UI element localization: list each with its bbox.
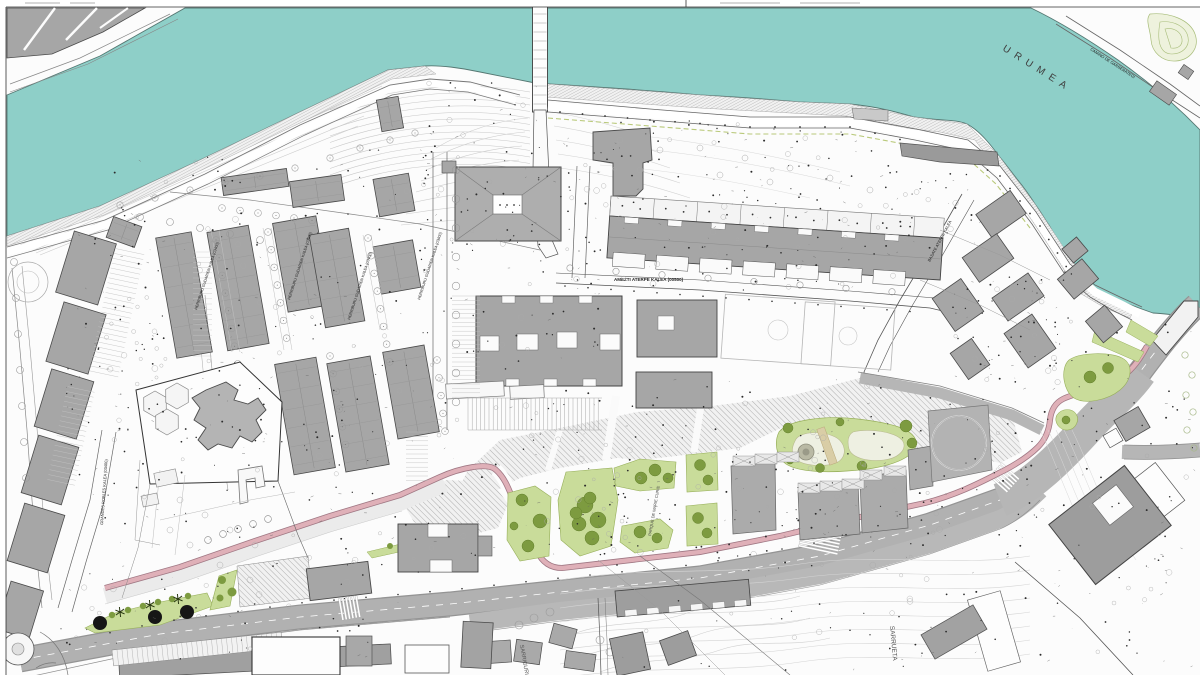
svg-text:AMEZTI ATERPE KALEA (00500): AMEZTI ATERPE KALEA (00500) [614, 277, 684, 282]
